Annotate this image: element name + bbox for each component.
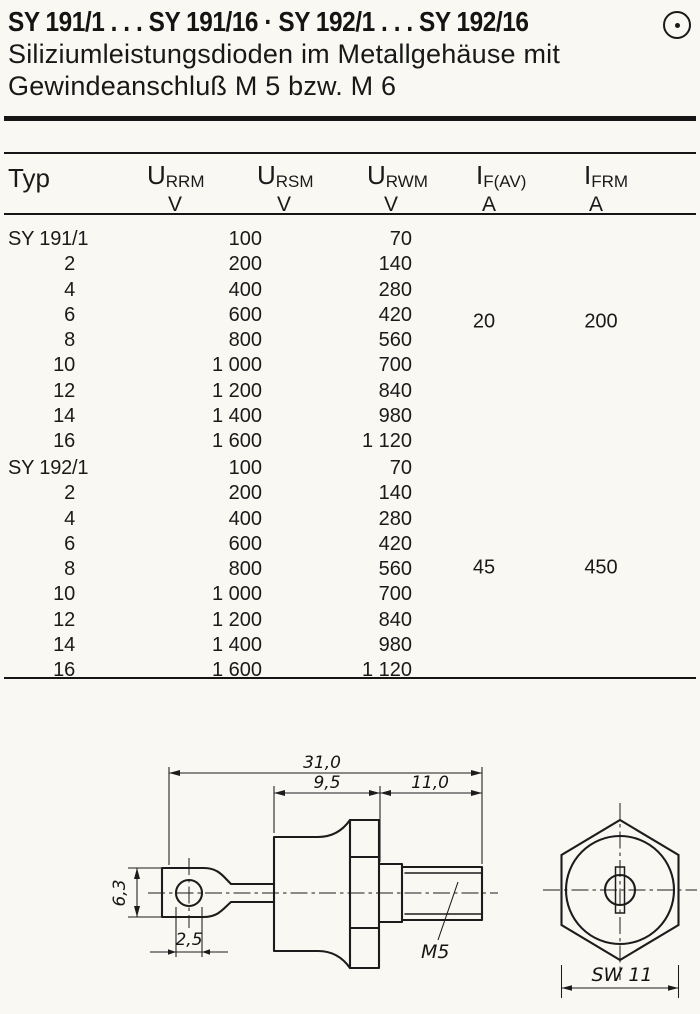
cell-typ: SY 192/1 xyxy=(8,456,75,481)
cell-urrm: 800 xyxy=(75,557,262,582)
dim-total-length-label: 31,0 xyxy=(303,753,341,773)
table-section-sy192: SY 192/110070220014044002806600420880056… xyxy=(8,456,412,684)
cell-urrm: 100 xyxy=(75,456,262,481)
column-header-urrm: URRM V xyxy=(147,163,205,216)
table-row: 161 6001 120 xyxy=(8,658,412,683)
table-row: 2200140 xyxy=(8,252,412,277)
cell-urwm: 980 xyxy=(262,404,412,429)
case-body xyxy=(274,820,350,968)
symbol: IFRM xyxy=(584,160,628,190)
cell-urwm: 840 xyxy=(262,608,412,633)
table-row: 4400280 xyxy=(8,278,412,303)
table-row: 141 400980 xyxy=(8,404,412,429)
table-row: SY 192/110070 xyxy=(8,456,412,481)
column-header-typ: Typ xyxy=(8,163,50,194)
table-row: 101 000700 xyxy=(8,582,412,607)
subtitle: Siliziumleistungsdioden im Metallgehäuse… xyxy=(8,38,560,102)
dim-across-flats-label: SW 11 xyxy=(591,964,652,986)
cell-urwm: 70 xyxy=(262,456,412,481)
cell-typ: 16 xyxy=(8,658,75,683)
cell-urrm: 1 600 xyxy=(75,658,262,683)
hex-flange xyxy=(350,820,379,968)
cell-typ: 14 xyxy=(8,633,75,658)
circle-dot-icon xyxy=(663,11,691,39)
cell-urwm: 140 xyxy=(262,252,412,277)
ifrm-value-sy191: 200 xyxy=(584,311,617,334)
cell-urrm: 600 xyxy=(75,303,262,328)
subtitle-line-2: Gewindeanschluß M 5 bzw. M 6 xyxy=(8,70,560,102)
subtitle-line-1: Siliziumleistungsdioden im Metallgehäuse… xyxy=(8,38,560,70)
cell-typ: 2 xyxy=(8,481,75,506)
ifrm-value-sy192: 450 xyxy=(584,557,617,580)
cell-urwm: 700 xyxy=(262,582,412,607)
dim-stud-length-label: 11,0 xyxy=(411,773,449,793)
cell-typ: 4 xyxy=(8,507,75,532)
cell-typ: 10 xyxy=(8,582,75,607)
cell-typ: 10 xyxy=(8,353,75,378)
symbol: IF(AV) xyxy=(476,160,526,190)
cell-urrm: 1 200 xyxy=(75,608,262,633)
cell-typ: 14 xyxy=(8,404,75,429)
cell-urwm: 280 xyxy=(262,507,412,532)
cell-urwm: 280 xyxy=(262,278,412,303)
end-view: SW 11 xyxy=(543,803,697,998)
symbol: URSM xyxy=(257,160,314,190)
thread-size-label: M5 xyxy=(421,941,449,963)
technical-drawing: 31,0 9,5 11,0 6,3 2,5 M5 SW 11 xyxy=(0,730,700,1014)
circle-dot-center xyxy=(675,23,680,28)
cell-typ: 6 xyxy=(8,303,75,328)
cell-urrm: 400 xyxy=(75,278,262,303)
cell-typ: 8 xyxy=(8,328,75,353)
cell-typ: SY 191/1 xyxy=(8,227,75,252)
cell-urrm: 1 400 xyxy=(75,404,262,429)
side-view: 31,0 9,5 11,0 6,3 2,5 M5 xyxy=(110,753,498,968)
datasheet-page: SY 191/1 . . . SY 191/16 · SY 192/1 . . … xyxy=(0,0,700,1014)
unit-label: V xyxy=(277,194,314,216)
page-title: SY 191/1 . . . SY 191/16 · SY 192/1 . . … xyxy=(8,6,528,38)
cell-urrm: 1 000 xyxy=(75,353,262,378)
ifav-value-sy192: 45 xyxy=(473,557,495,580)
table-row: 6600420 xyxy=(8,532,412,557)
symbol: URWM xyxy=(367,160,428,190)
table-row: 8800560 xyxy=(8,557,412,582)
unit-label: V xyxy=(384,194,428,216)
column-header-ifrm: IFRM A xyxy=(584,163,628,216)
table-section-sy191: SY 191/110070220014044002806600420880056… xyxy=(8,227,412,455)
divider-thick xyxy=(4,116,696,121)
table-row: 6600420 xyxy=(8,303,412,328)
unit-label: A xyxy=(589,194,628,216)
table-row: 4400280 xyxy=(8,507,412,532)
cell-typ: 16 xyxy=(8,429,75,454)
cell-typ: 12 xyxy=(8,379,75,404)
table-row: 8800560 xyxy=(8,328,412,353)
column-header-urwm: URWM V xyxy=(367,163,428,216)
cell-urwm: 70 xyxy=(262,227,412,252)
cell-urrm: 1 000 xyxy=(75,582,262,607)
cell-urwm: 980 xyxy=(262,633,412,658)
table-row: 101 000700 xyxy=(8,353,412,378)
cell-urrm: 200 xyxy=(75,481,262,506)
dim-hole-dia-label: 2,5 xyxy=(175,930,202,950)
cell-urwm: 840 xyxy=(262,379,412,404)
cell-urwm: 1 120 xyxy=(262,658,412,683)
dim-tab-width-label: 6,3 xyxy=(110,879,130,906)
cell-urrm: 100 xyxy=(75,227,262,252)
cell-urrm: 200 xyxy=(75,252,262,277)
cell-urrm: 1 400 xyxy=(75,633,262,658)
cell-urwm: 140 xyxy=(262,481,412,506)
column-header-ursm: URSM V xyxy=(257,163,314,216)
extension-lines xyxy=(128,767,482,957)
table-row: SY 191/110070 xyxy=(8,227,412,252)
cell-urwm: 560 xyxy=(262,557,412,582)
cell-urwm: 700 xyxy=(262,353,412,378)
symbol: URRM xyxy=(147,160,205,190)
cell-typ: 2 xyxy=(8,252,75,277)
unit-label: V xyxy=(168,194,205,216)
cell-urrm: 600 xyxy=(75,532,262,557)
cell-urwm: 420 xyxy=(262,532,412,557)
table-row: 2200140 xyxy=(8,481,412,506)
cell-urrm: 1 600 xyxy=(75,429,262,454)
table-row: 141 400980 xyxy=(8,633,412,658)
cell-typ: 6 xyxy=(8,532,75,557)
m5-leader-line xyxy=(438,882,458,940)
unit-label: A xyxy=(482,194,526,216)
table-top-rule xyxy=(4,152,696,154)
cell-urwm: 1 120 xyxy=(262,429,412,454)
cell-typ: 4 xyxy=(8,278,75,303)
cell-urwm: 560 xyxy=(262,328,412,353)
table-row: 121 200840 xyxy=(8,608,412,633)
cell-urrm: 1 200 xyxy=(75,379,262,404)
dim-case-length-label: 9,5 xyxy=(313,773,340,793)
column-header-ifav: IF(AV) A xyxy=(476,163,526,216)
cell-typ: 12 xyxy=(8,608,75,633)
cell-urwm: 420 xyxy=(262,303,412,328)
cell-urrm: 800 xyxy=(75,328,262,353)
cell-typ: 8 xyxy=(8,557,75,582)
ifav-value-sy191: 20 xyxy=(473,311,495,334)
table-row: 121 200840 xyxy=(8,379,412,404)
cell-urrm: 400 xyxy=(75,507,262,532)
table-row: 161 6001 120 xyxy=(8,429,412,454)
